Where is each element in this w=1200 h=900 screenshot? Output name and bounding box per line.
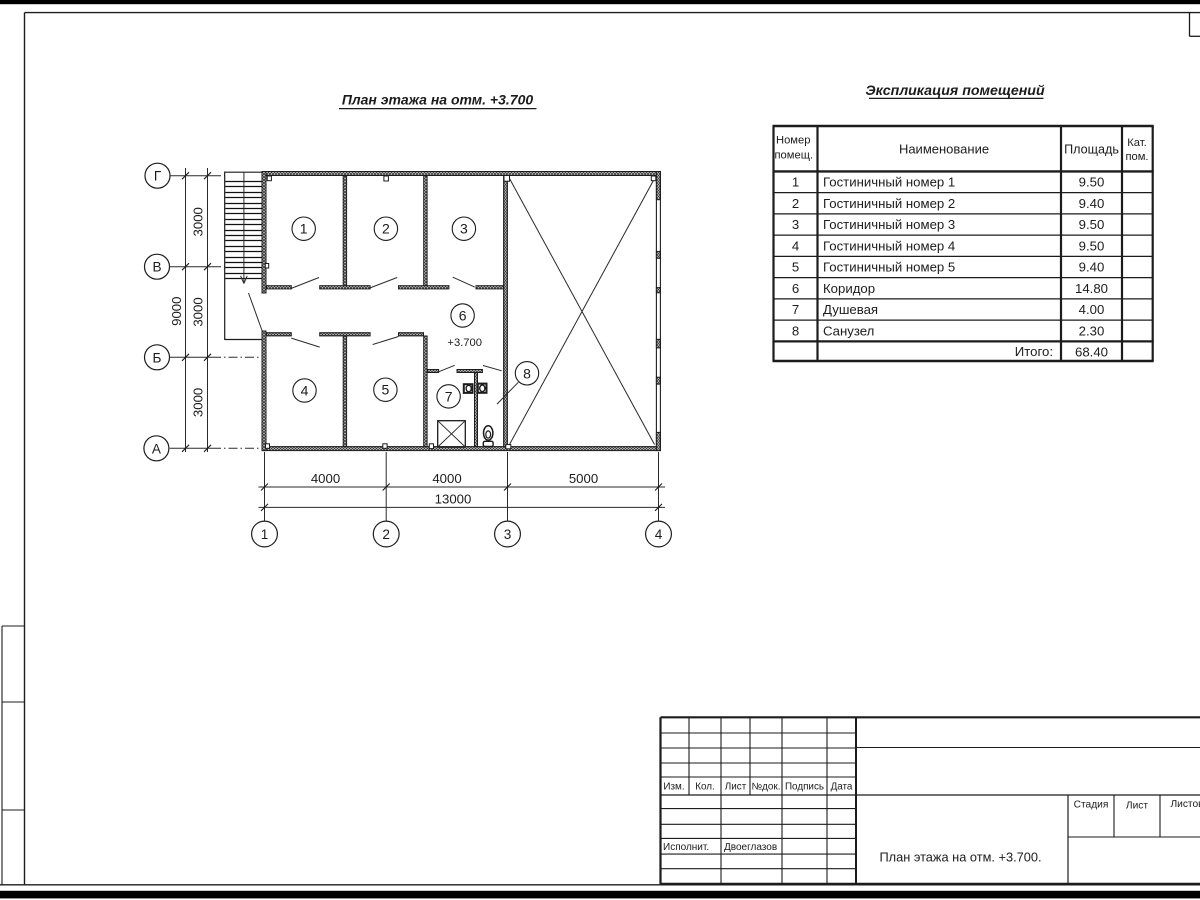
svg-text:В: В: [152, 260, 161, 275]
svg-text:2: 2: [382, 527, 390, 542]
svg-text:Коридор: Коридор: [823, 281, 875, 296]
svg-text:4000: 4000: [432, 471, 461, 486]
svg-text:помещ.: помещ.: [775, 150, 814, 162]
svg-text:Итого:: Итого:: [1015, 344, 1053, 359]
svg-text:Гостиничный номер 4: Гостиничный номер 4: [823, 238, 955, 253]
svg-text:2: 2: [792, 196, 799, 211]
svg-text:4: 4: [792, 238, 799, 253]
svg-text:Б: Б: [153, 350, 162, 365]
svg-text:9.50: 9.50: [1079, 238, 1105, 253]
svg-text:13000: 13000: [435, 492, 472, 507]
svg-text:А: А: [152, 441, 162, 456]
svg-text:Изм.: Изм.: [663, 782, 684, 793]
svg-text:4000: 4000: [311, 471, 340, 486]
svg-text:План этажа на отм. +3.700.: План этажа на отм. +3.700.: [879, 850, 1041, 865]
svg-text:9.50: 9.50: [1079, 175, 1105, 190]
svg-text:+3.700: +3.700: [447, 337, 482, 349]
svg-text:Гостиничный номер 3: Гостиничный номер 3: [823, 217, 955, 232]
svg-text:8: 8: [523, 365, 531, 381]
svg-text:3: 3: [504, 527, 512, 542]
svg-text:2.30: 2.30: [1079, 323, 1105, 338]
svg-text:пом.: пом.: [1125, 151, 1148, 163]
svg-text:6: 6: [792, 281, 799, 296]
svg-text:Двоеглазов: Двоеглазов: [724, 842, 777, 853]
svg-text:Номер: Номер: [776, 135, 810, 147]
svg-text:Кат.: Кат.: [1127, 137, 1146, 149]
svg-text:4: 4: [655, 527, 663, 542]
svg-text:Наименование: Наименование: [899, 142, 989, 157]
svg-text:9.50: 9.50: [1079, 217, 1105, 232]
svg-text:14.80: 14.80: [1075, 281, 1108, 296]
svg-text:7: 7: [792, 302, 799, 317]
svg-text:7: 7: [445, 388, 453, 404]
svg-text:2: 2: [382, 221, 390, 237]
svg-text:9.40: 9.40: [1079, 196, 1105, 211]
svg-text:1: 1: [792, 175, 799, 190]
svg-text:Площадь: Площадь: [1064, 143, 1119, 157]
svg-text:Подпись: Подпись: [785, 782, 824, 793]
svg-text:3: 3: [792, 217, 799, 232]
svg-text:Г: Г: [154, 169, 162, 184]
svg-text:68.40: 68.40: [1075, 345, 1108, 360]
svg-text:3000: 3000: [191, 297, 206, 326]
svg-text:Гостиничный номер 5: Гостиничный номер 5: [823, 260, 955, 275]
svg-text:6: 6: [459, 308, 467, 324]
svg-text:4.00: 4.00: [1079, 302, 1105, 317]
svg-text:Дата: Дата: [831, 782, 853, 793]
svg-text:9.40: 9.40: [1079, 260, 1105, 275]
svg-text:Исполнит.: Исполнит.: [663, 842, 709, 853]
svg-text:Санузел: Санузел: [823, 323, 874, 338]
svg-text:1: 1: [300, 221, 308, 237]
svg-text:8: 8: [792, 323, 799, 338]
svg-text:5: 5: [382, 382, 390, 398]
svg-text:1: 1: [261, 527, 269, 542]
svg-text:3000: 3000: [191, 388, 206, 417]
svg-text:Лист: Лист: [1126, 801, 1148, 812]
svg-text:5000: 5000: [569, 471, 598, 486]
svg-text:Лист: Лист: [725, 782, 747, 793]
svg-text:3000: 3000: [191, 207, 206, 236]
svg-text:4: 4: [301, 383, 309, 399]
svg-text:Стадия: Стадия: [1074, 800, 1109, 811]
svg-text:Душевая: Душевая: [823, 302, 878, 317]
svg-text:3: 3: [460, 221, 468, 237]
svg-text:Кол.: Кол.: [695, 782, 715, 793]
svg-text:9000: 9000: [169, 297, 184, 326]
svg-text:№док.: №док.: [752, 782, 781, 793]
svg-text:Гостиничный номер 2: Гостиничный номер 2: [823, 196, 955, 211]
svg-text:Экспликация помещений: Экспликация помещений: [865, 83, 1045, 99]
svg-text:План этажа на отм. +3.700: План этажа на отм. +3.700: [342, 92, 534, 108]
svg-text:Гостиничный номер 1: Гостиничный номер 1: [823, 175, 955, 190]
svg-text:Листов: Листов: [1170, 799, 1200, 810]
svg-text:5: 5: [792, 260, 799, 275]
